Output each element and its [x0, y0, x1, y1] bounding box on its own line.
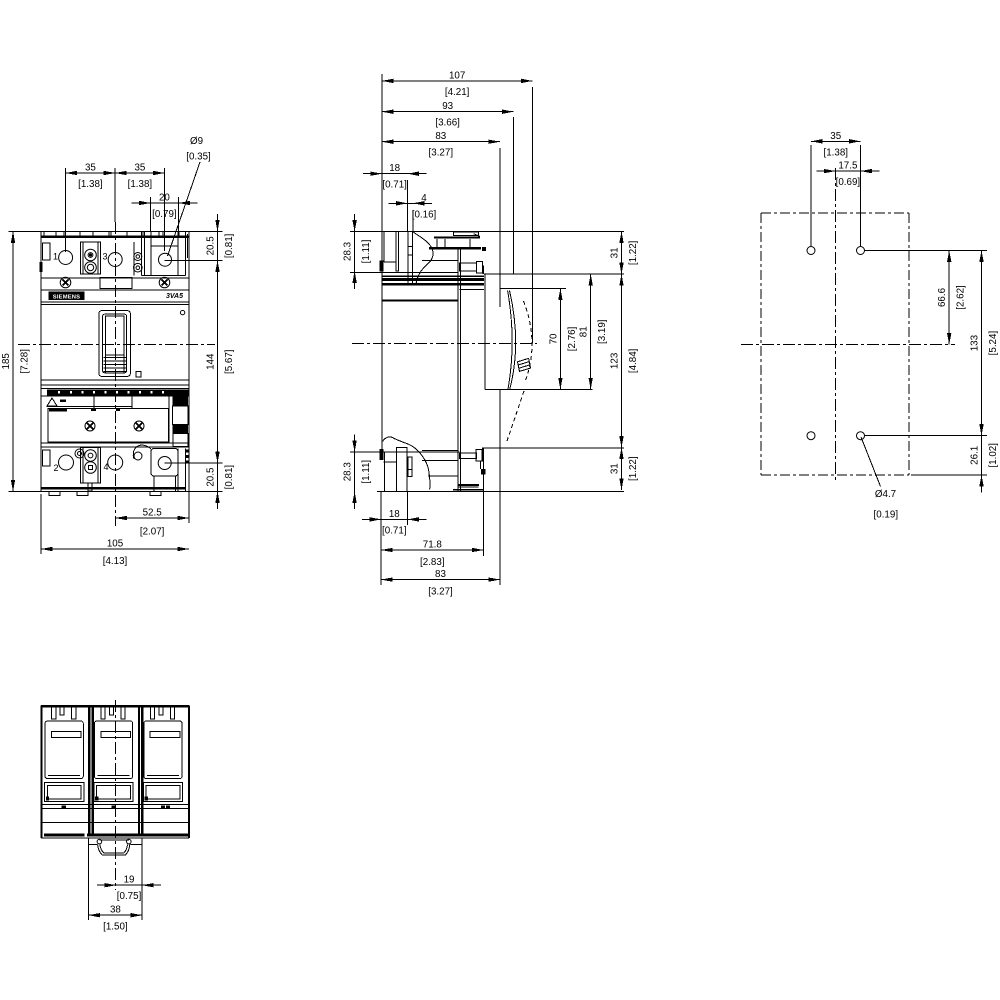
svg-text:133: 133: [970, 334, 981, 351]
svg-text:[0.71]: [0.71]: [382, 180, 407, 191]
svg-text:31: 31: [610, 247, 621, 258]
svg-text:[1.11]: [1.11]: [361, 239, 372, 263]
svg-text:70: 70: [548, 333, 559, 344]
svg-text:[3.19]: [3.19]: [597, 319, 608, 344]
svg-text:17.5: 17.5: [838, 161, 858, 172]
svg-text:31: 31: [610, 463, 621, 474]
svg-text:3VA5: 3VA5: [166, 293, 183, 300]
svg-text:107: 107: [449, 70, 465, 81]
svg-text:[4.13]: [4.13]: [103, 556, 128, 567]
svg-text:19: 19: [124, 875, 135, 886]
svg-text:[0.19]: [0.19]: [874, 510, 899, 521]
svg-text:[4.21]: [4.21]: [445, 87, 470, 98]
svg-text:35: 35: [134, 163, 145, 174]
svg-text:[0.79]: [0.79]: [152, 209, 177, 220]
svg-text:[1.22]: [1.22]: [628, 456, 639, 481]
svg-text:[1.38]: [1.38]: [823, 147, 848, 158]
svg-text:26.1: 26.1: [970, 446, 981, 465]
svg-text:20: 20: [159, 193, 170, 204]
svg-text:2: 2: [53, 463, 58, 473]
svg-text:18: 18: [389, 163, 400, 174]
svg-text:[2.07]: [2.07]: [140, 527, 165, 538]
svg-text:18: 18: [389, 509, 400, 520]
svg-text:35: 35: [85, 163, 96, 174]
svg-text:83: 83: [435, 569, 446, 580]
svg-text:28.3: 28.3: [343, 241, 354, 261]
svg-text:83: 83: [435, 131, 446, 142]
svg-text:[4.84]: [4.84]: [628, 348, 639, 373]
svg-text:123: 123: [610, 352, 621, 369]
svg-text:185: 185: [1, 353, 12, 370]
svg-text:[0.81]: [0.81]: [224, 233, 235, 258]
svg-text:[1.50]: [1.50]: [103, 922, 128, 933]
svg-text:[2.76]: [2.76]: [567, 326, 578, 351]
svg-text:Ø4.7: Ø4.7: [875, 489, 896, 500]
svg-text:4: 4: [421, 193, 427, 204]
svg-text:[5.24]: [5.24]: [988, 331, 999, 356]
svg-text:[0.81]: [0.81]: [224, 465, 235, 490]
svg-text:144: 144: [206, 353, 217, 370]
svg-text:35: 35: [830, 131, 841, 142]
svg-text:66.6: 66.6: [937, 287, 948, 307]
svg-text:[0.69]: [0.69]: [836, 177, 861, 188]
svg-text:[7.28]: [7.28]: [20, 349, 31, 374]
svg-text:71.8: 71.8: [423, 540, 443, 551]
svg-text:[0.35]: [0.35]: [186, 152, 211, 163]
svg-text:[2.83]: [2.83]: [420, 557, 445, 568]
svg-text:93: 93: [442, 101, 453, 112]
svg-text:52.5: 52.5: [143, 508, 163, 519]
svg-text:28.3: 28.3: [343, 462, 354, 482]
svg-text:[1.11]: [1.11]: [361, 460, 372, 484]
svg-text:[2.62]: [2.62]: [956, 285, 967, 310]
svg-text:20.5: 20.5: [206, 467, 217, 487]
svg-text:[1.38]: [1.38]: [78, 179, 103, 190]
svg-text:[0.71]: [0.71]: [382, 525, 407, 536]
svg-text:105: 105: [107, 539, 124, 550]
svg-text:81: 81: [579, 326, 590, 337]
svg-text:[1.02]: [1.02]: [988, 443, 999, 468]
svg-text:[3.66]: [3.66]: [435, 118, 460, 129]
svg-text:[5.67]: [5.67]: [224, 349, 235, 374]
svg-text:[1.22]: [1.22]: [628, 240, 639, 265]
svg-text:4: 4: [103, 462, 108, 472]
svg-text:[0.16]: [0.16]: [412, 209, 437, 220]
svg-text:38: 38: [110, 905, 121, 916]
svg-text:SIEMENS: SIEMENS: [53, 294, 81, 300]
svg-text:20.5: 20.5: [206, 236, 217, 256]
svg-text:[1.38]: [1.38]: [128, 179, 153, 190]
svg-text:[0.75]: [0.75]: [117, 891, 142, 902]
svg-text:Ø9: Ø9: [190, 136, 203, 147]
svg-text:1: 1: [53, 252, 58, 262]
svg-text:3: 3: [102, 252, 107, 262]
svg-text:[3.27]: [3.27]: [428, 587, 453, 598]
svg-text:[3.27]: [3.27]: [429, 148, 454, 159]
